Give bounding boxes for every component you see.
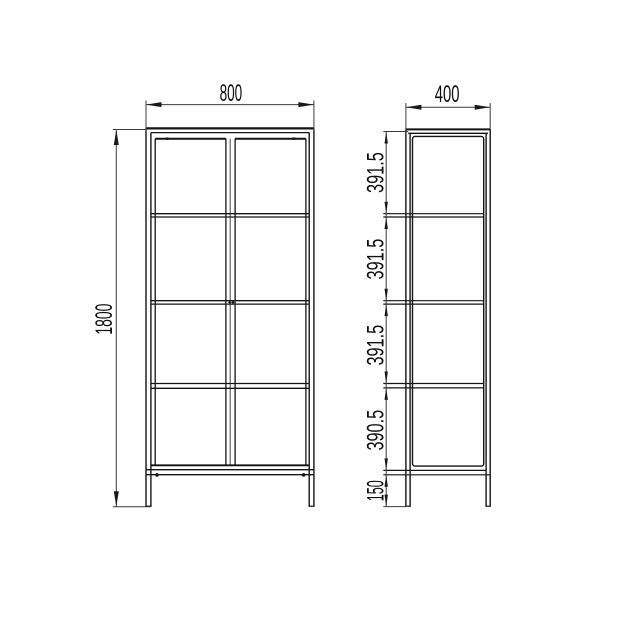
- svg-text:1800: 1800: [91, 304, 118, 335]
- svg-text:391.5: 391.5: [363, 239, 390, 280]
- svg-text:391.5: 391.5: [363, 152, 390, 193]
- svg-text:800: 800: [220, 80, 243, 107]
- svg-text:390.5: 390.5: [363, 410, 390, 451]
- svg-text:400: 400: [435, 81, 460, 108]
- svg-text:391.5: 391.5: [363, 325, 390, 366]
- svg-text:150: 150: [363, 480, 390, 501]
